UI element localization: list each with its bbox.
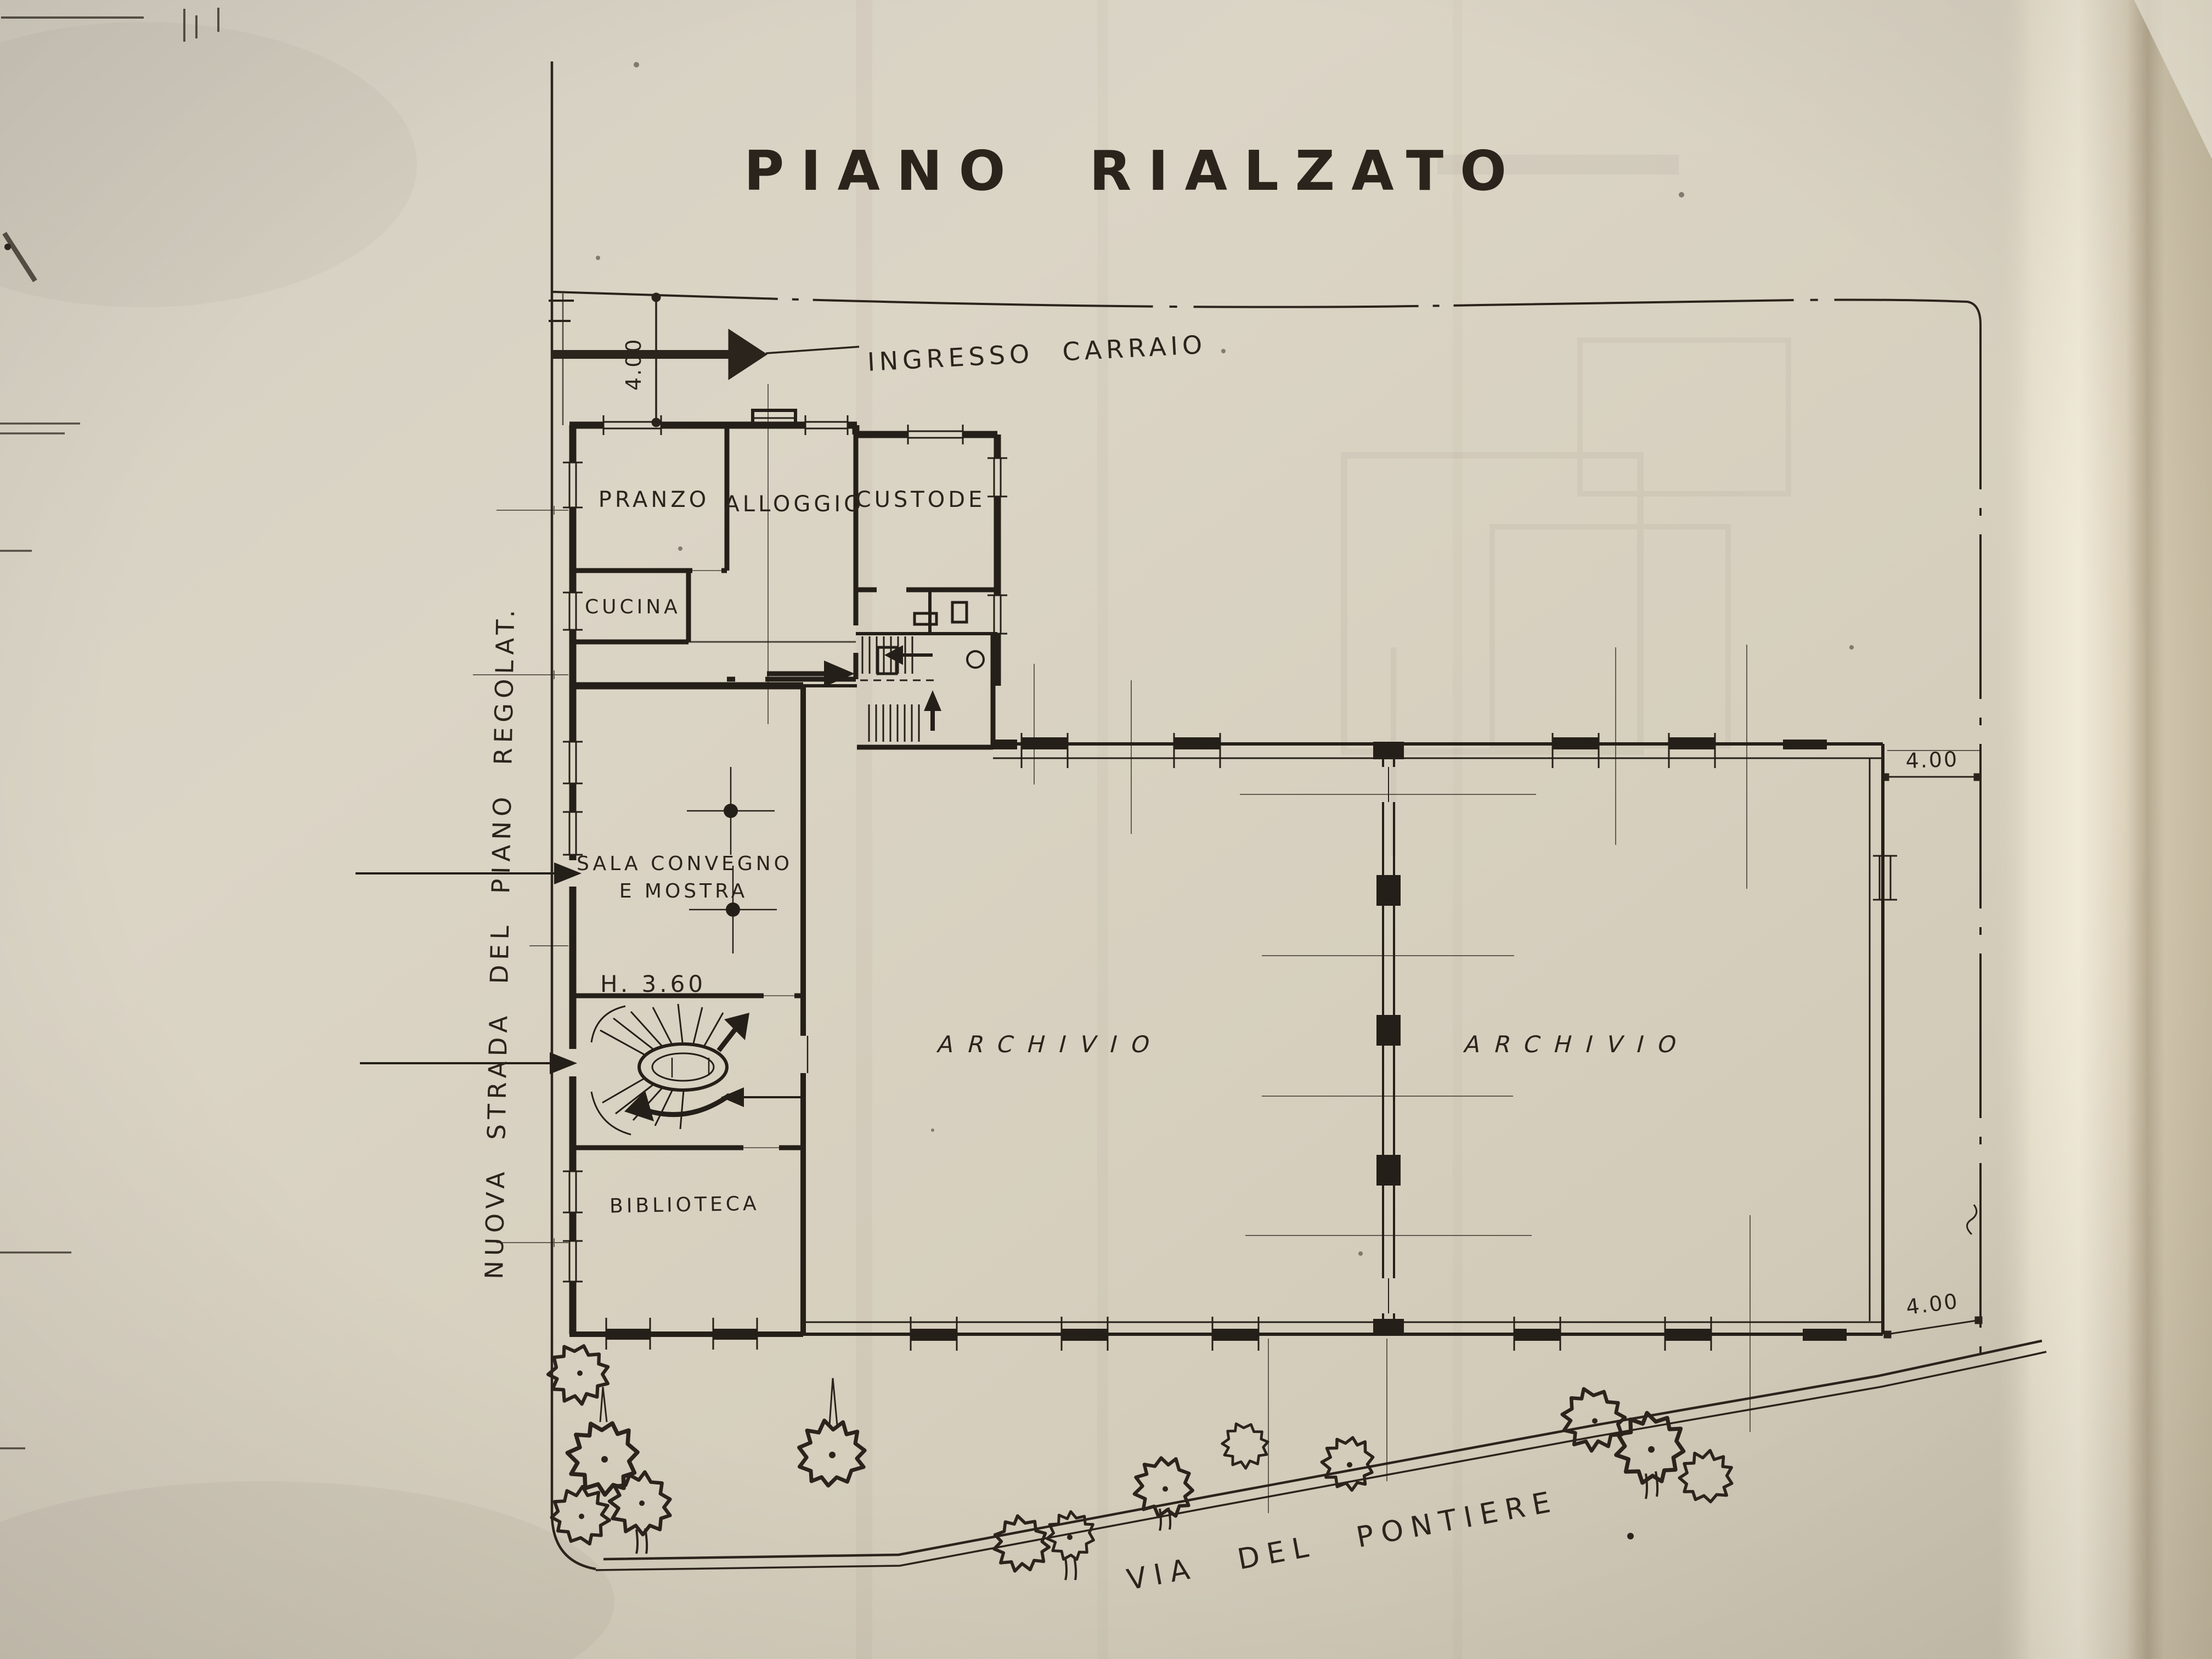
label-alloggio: ALLOGGIO [724, 492, 864, 517]
label-pranzo: PRANZO [599, 487, 709, 512]
dim-top-left: 4.00 [622, 337, 646, 391]
label-sala-line1: SALA CONVEGNO [577, 853, 793, 875]
label-cucina: CUCINA [585, 596, 681, 618]
label-custode: CUSTODE [856, 487, 986, 512]
label-archivio-right: ARCHIVIO [1462, 1031, 1694, 1058]
label-height-note: H. 3.60 [600, 970, 706, 997]
photographed-floor-plan: PIANO RIALZATO INGRESSO CARRAIO PRANZO A… [0, 0, 2212, 1659]
label-sala-line2: E MOSTRA [619, 880, 748, 902]
label-archivio-left: ARCHIVIO [935, 1031, 1167, 1058]
dim-right-upper: 4.00 [1905, 747, 1959, 773]
label-biblioteca: BIBLIOTECA [610, 1193, 760, 1218]
page-title: PIANO RIALZATO [744, 139, 1523, 203]
via-period-dot [1627, 1533, 1634, 1539]
floor-plan-drawing: PIANO RIALZATO INGRESSO CARRAIO PRANZO A… [0, 0, 2212, 1659]
paper-background [0, 0, 2212, 1659]
